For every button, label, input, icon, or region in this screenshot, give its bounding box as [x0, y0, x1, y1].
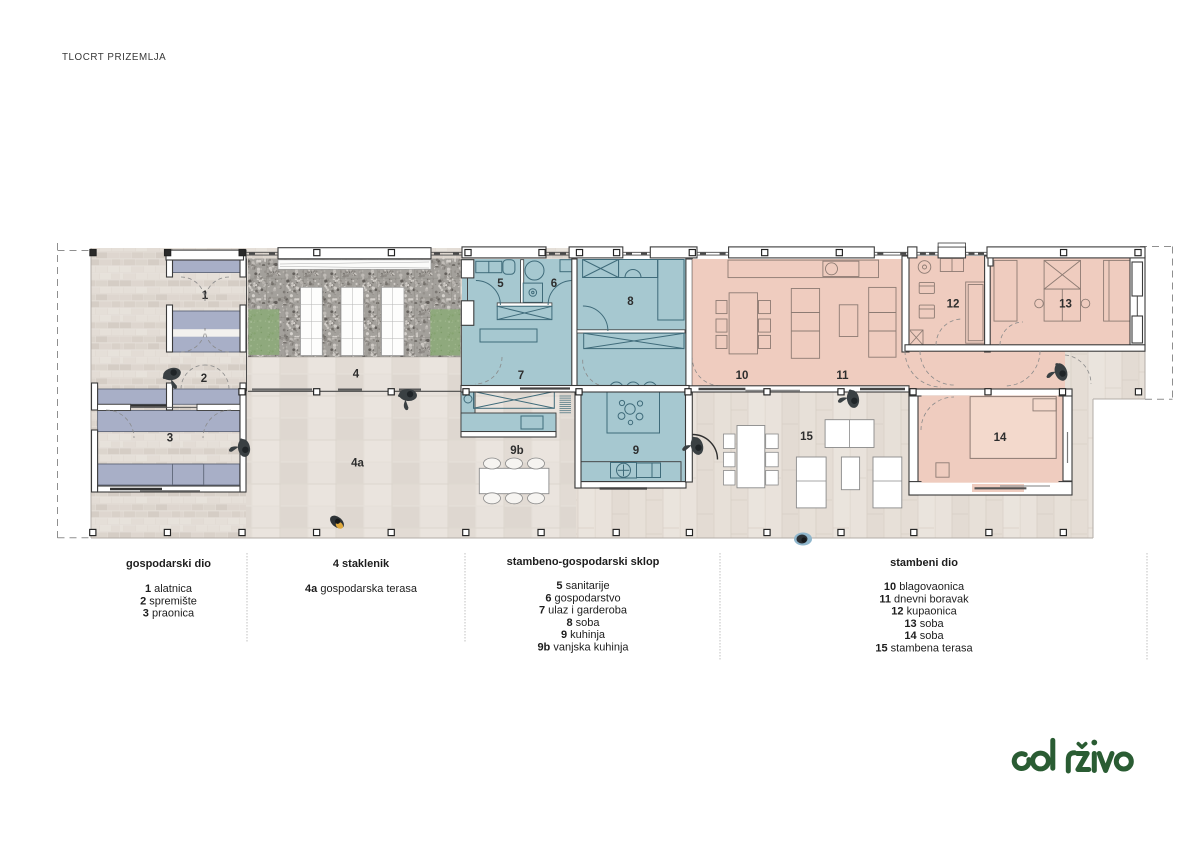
svg-text:15: 15	[800, 431, 813, 443]
svg-text:8: 8	[627, 296, 634, 308]
svg-text:5 sanitarije: 5 sanitarije	[556, 580, 609, 592]
svg-text:12: 12	[947, 299, 960, 311]
svg-text:2 spremište: 2 spremište	[140, 595, 197, 607]
svg-text:4a gospodarska terasa: 4a gospodarska terasa	[305, 583, 418, 595]
svg-text:1 alatnica: 1 alatnica	[145, 583, 193, 595]
svg-text:stambeno-gospodarski sklop: stambeno-gospodarski sklop	[507, 556, 660, 568]
svg-text:11: 11	[836, 370, 849, 382]
svg-text:15 stambena terasa: 15 stambena terasa	[875, 643, 973, 655]
svg-text:13: 13	[1059, 299, 1072, 311]
svg-text:6: 6	[551, 278, 557, 290]
svg-text:13 soba: 13 soba	[904, 618, 944, 630]
svg-text:10 blagovaonica: 10 blagovaonica	[884, 581, 965, 593]
svg-text:4a: 4a	[351, 458, 364, 470]
svg-text:5: 5	[497, 278, 504, 290]
svg-text:7 ulaz i garderoba: 7 ulaz i garderoba	[539, 605, 628, 617]
svg-text:2: 2	[201, 373, 207, 385]
svg-text:9b: 9b	[510, 445, 523, 457]
svg-text:14 soba: 14 soba	[904, 630, 944, 642]
svg-text:TLOCRT PRIZEMLJA: TLOCRT PRIZEMLJA	[62, 52, 166, 63]
svg-text:14: 14	[994, 432, 1007, 444]
svg-text:8 soba: 8 soba	[566, 617, 600, 629]
svg-text:stambeni dio: stambeni dio	[890, 557, 958, 569]
svg-text:12 kupaonica: 12 kupaonica	[891, 606, 957, 618]
svg-text:4: 4	[353, 369, 360, 381]
svg-text:6 gospodarstvo: 6 gospodarstvo	[545, 592, 620, 604]
svg-text:10: 10	[736, 370, 749, 382]
svg-text:9: 9	[633, 445, 639, 457]
svg-text:9b vanjska kuhinja: 9b vanjska kuhinja	[537, 642, 629, 654]
svg-text:7: 7	[518, 370, 524, 382]
svg-text:3 praonica: 3 praonica	[143, 608, 195, 620]
svg-text:gospodarski dio: gospodarski dio	[126, 558, 211, 570]
svg-text:9 kuhinja: 9 kuhinja	[561, 629, 606, 641]
svg-text:3: 3	[167, 433, 173, 445]
svg-text:11 dnevni boravak: 11 dnevni boravak	[879, 593, 969, 605]
svg-text:4 staklenik: 4 staklenik	[333, 558, 390, 570]
